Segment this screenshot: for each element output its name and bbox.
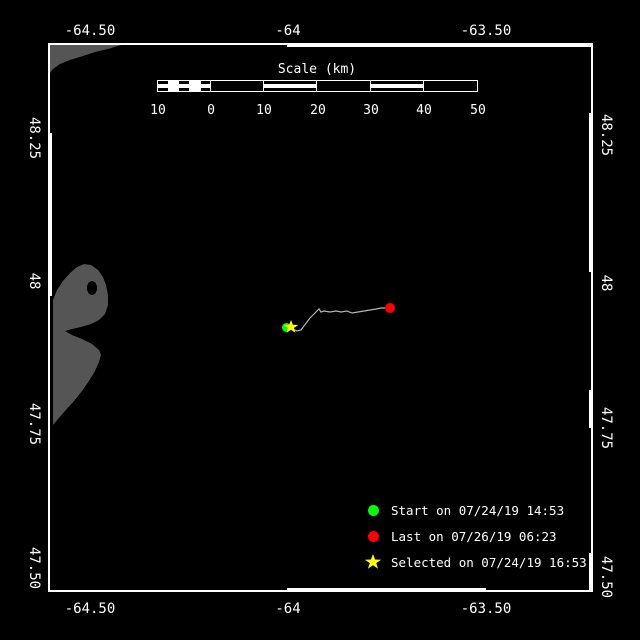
scale-tick-label: 30 [363,103,379,118]
map-window: -64.50 -64 -63.50 -64.50 -64 -63.50 48.2… [0,0,640,640]
scale-tick-label: 50 [470,103,486,118]
lon-label-top: -63.50 [461,23,512,39]
lon-label-top: -64.50 [65,23,116,39]
legend-item-last: Last on 07/26/19 06:23 [367,523,587,549]
scale-segment [371,81,424,91]
scale-bar-title: Scale (km) [278,62,356,77]
selected-star-icon [365,554,382,570]
lat-label-left: 48 [26,273,42,290]
legend-label-last: Last on 07/26/19 06:23 [391,529,557,544]
lon-label-bottom: -64 [275,601,300,617]
graticule-segment-top [287,45,593,47]
scale-tick-label: 0 [207,103,215,118]
scale-segment [211,81,264,91]
graticule-segment-right [589,553,591,590]
lat-label-right: 47.75 [598,407,614,449]
scale-tick-label: 10 [256,103,272,118]
lon-label-top: -64 [275,23,300,39]
scale-bar [157,80,478,92]
lat-label-left: 47.75 [26,403,42,445]
legend-label-selected: Selected on 07/24/19 16:53 [391,555,587,570]
start-dot-icon [368,505,379,516]
legend-label-start: Start on 07/24/19 14:53 [391,503,564,518]
scale-segment [190,81,201,91]
lat-label-right: 48 [598,275,614,292]
lon-label-bottom: -64.50 [65,601,116,617]
scale-segment [179,81,190,91]
scale-segment [424,81,477,91]
legend-item-start: Start on 07/24/19 14:53 [367,497,587,523]
scale-segment [158,81,169,91]
last-dot-icon [368,531,379,542]
lon-label-bottom: -63.50 [461,601,512,617]
lat-label-right: 48.25 [598,114,614,156]
scale-segment [264,81,317,91]
graticule-segment-right [589,390,591,428]
graticule-segment-left [50,133,52,296]
scale-segment [317,81,370,91]
graticule-segment-bottom [287,588,486,590]
last-marker[interactable] [385,303,395,313]
scale-tick-label: 10 [150,103,166,118]
scale-tick-label: 40 [416,103,432,118]
legend: Start on 07/24/19 14:53 Last on 07/26/19… [367,497,587,575]
lat-label-left: 47.50 [26,547,42,589]
scale-tick-label: 20 [310,103,326,118]
scale-segment [169,81,180,91]
scale-segment [201,81,212,91]
lat-label-left: 48.25 [26,117,42,159]
graticule-segment-right [589,113,591,272]
lat-label-right: 47.50 [598,556,614,598]
legend-item-selected: Selected on 07/24/19 16:53 [367,549,587,575]
